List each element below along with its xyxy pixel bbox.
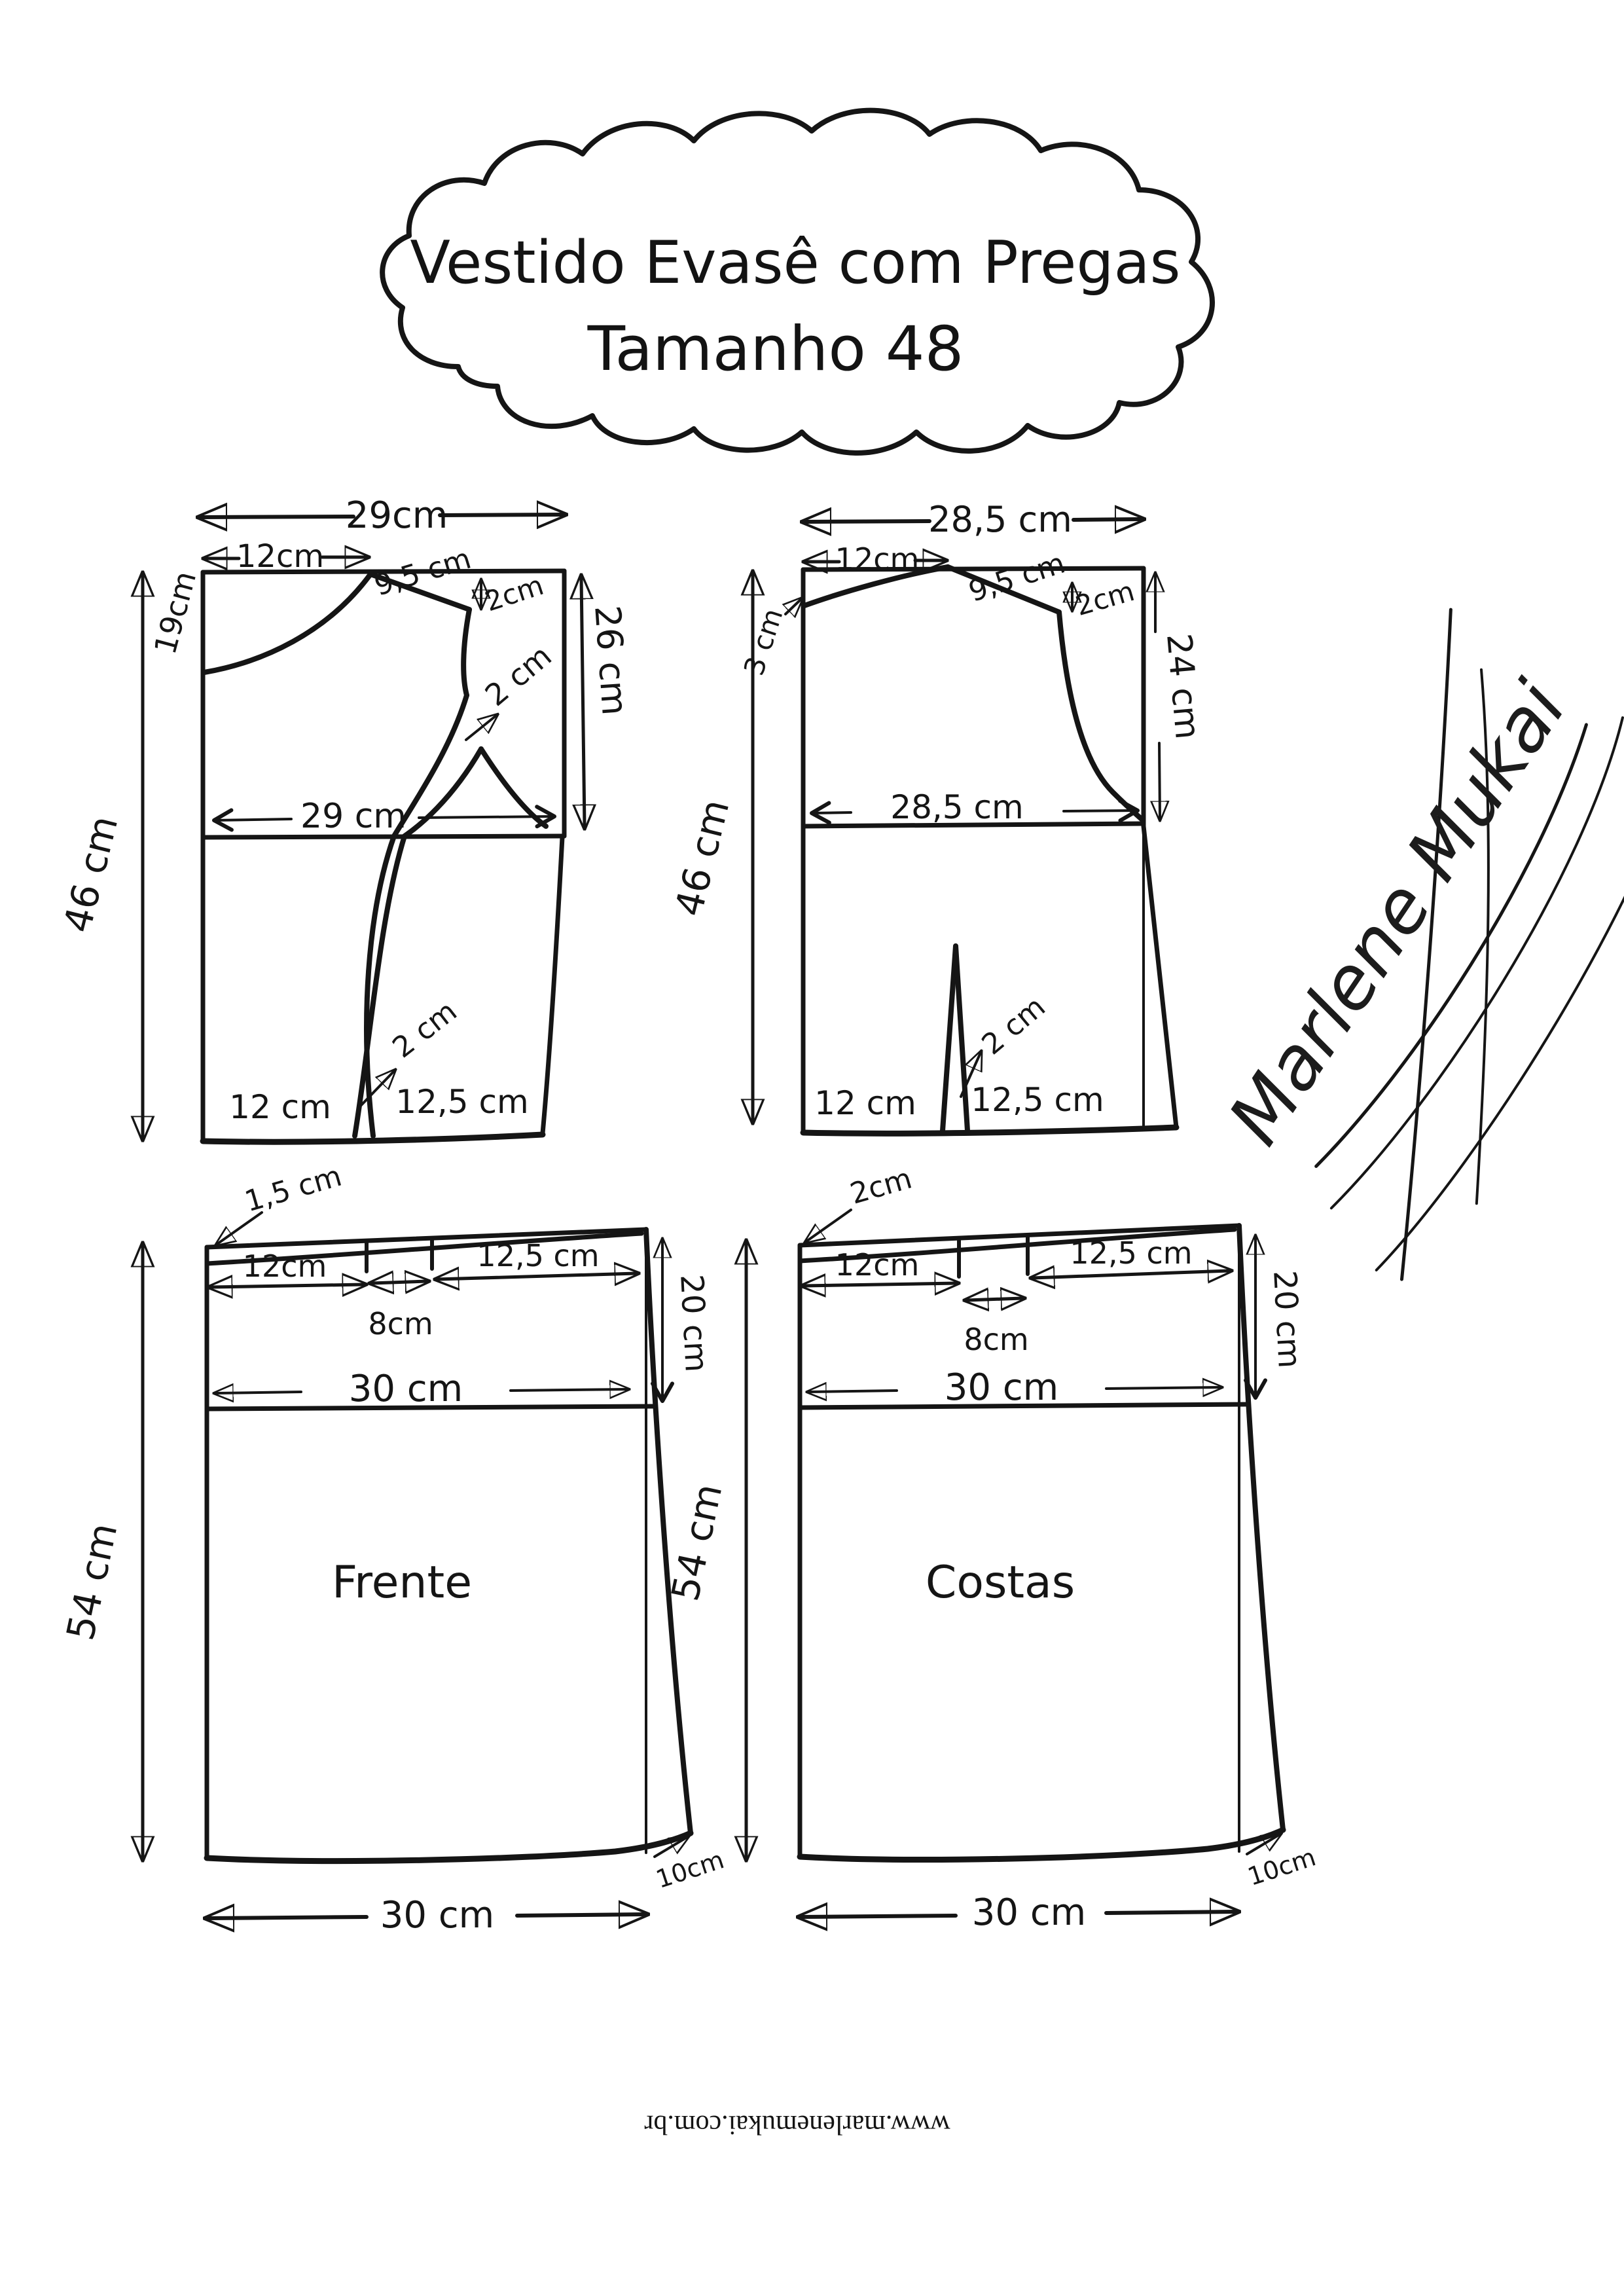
skirt-back-pleat-arrow [967,1298,1022,1300]
bodice-back-side-length-arrow2 [1159,743,1160,818]
bodice-front-armhole [463,610,469,695]
bodice-front-hem-seg-right-label: 12,5 cm [395,1083,528,1121]
bodice-front-side-length-arrow [581,577,585,826]
bodice-front-waist-arrow [214,819,291,820]
skirt-back-hem-width-arrow2 [1106,1912,1236,1913]
skirt-back-hem-width-arrow [801,1916,956,1917]
signature-text: Marlene Mukai [1212,667,1583,1159]
bodice-front-top-width-label: 29cm [346,494,448,537]
skirt-front-seg1-arrow [211,1285,364,1287]
bodice-back-hem-dart-label: 2 cm [976,990,1052,1061]
skirt-back-hem-width-label: 30 cm [972,1891,1086,1934]
skirt-back-hip-width-arrow [809,1391,897,1392]
skirt-front-hem [207,1833,691,1861]
bodice-back-height-label: 46 cm [666,795,738,920]
bodice-back-dart-right-leg [956,946,967,1131]
skirt-back-hip-drop-label: 20 cm [1266,1269,1308,1369]
skirt-front-hip-drop-label: 20 cm [673,1273,715,1373]
skirt-front-pleat-label: 8cm [368,1306,433,1341]
bodice-front-princess-line-1 [367,695,467,1136]
bodice-back-waist-width-label: 28,5 cm [890,788,1023,826]
bodice-front-neck-width-label: 12cm [236,538,324,575]
bodice-back-side-length-label: 24 cm [1159,632,1207,741]
title-cloud: Vestido Evasê com Pregas Tamanho 48 [382,111,1212,453]
bodice-back-neck-depth-arrow [785,599,801,614]
bodice-back-dart-left-leg [943,946,956,1131]
bodice-back-top-width-arrow2 [1074,519,1141,520]
skirt-back-rise-label: 2cm [846,1161,915,1211]
pattern-canvas: Vestido Evasê com Pregas Tamanho 48 29cm… [0,0,1624,2296]
skirt-back-hip-width-label: 30 cm [945,1366,1058,1409]
bodice-back-shoulder-label: 9,5 cm [965,547,1069,609]
skirt-back-seg2-label: 12,5 cm [1070,1235,1192,1271]
skirt-back-hip-width-arrow2 [1106,1387,1220,1389]
bodice-front-neck-depth-label: 19cm [147,568,203,658]
skirt-back-pleat-label: 8cm [964,1322,1028,1357]
bodice-front-hem-seg-left-label: 12 cm [229,1088,331,1126]
bodice-back-armhole [1059,612,1142,820]
bodice-front-height-label: 46 cm [55,811,127,937]
bodice-back-waist-arrow [812,812,851,813]
bodice-front-hem-dart-label: 2 cm [386,994,463,1065]
skirt-front-seg1-label: 12cm [243,1248,327,1284]
bodice-front-top-width-arrow2 [440,515,563,515]
skirt-front-pleat-arrow [372,1281,427,1283]
bodice-front-side-length-label: 26 cm [586,604,636,717]
piece-bodice-back: 28,5 cm 12cm 3 cm 9,5 cm 2cm 24 cm 46 cm… [666,499,1207,1133]
skirt-back-seg1-label: 12cm [835,1247,920,1283]
skirt-front-seg2-arrow [437,1273,636,1279]
bodice-front-armhole-dart-arrow [466,716,496,740]
skirt-front-hip-width-arrow [216,1392,301,1393]
bodice-front-waist-line [203,836,564,837]
bodice-back-neck-width-label: 12cm [835,541,920,577]
piece-skirt-back: 2cm 12cm 8cm 12,5 cm 20 cm 30 cm 54 cm C… [662,1161,1319,1934]
bodice-back-top-width-label: 28,5 cm [928,499,1072,540]
bodice-back-shoulder-drop-label: 2cm [1072,575,1138,622]
skirt-back-piece-label: Costas [926,1557,1075,1609]
skirt-back-seg1-arrow [804,1283,956,1286]
skirt-back-hem [800,1830,1283,1859]
page-title: Vestido Evasê com Pregas [410,228,1180,297]
pattern-sheet: Vestido Evasê com Pregas Tamanho 48 29cm… [0,0,1624,2296]
skirt-back-rise-arrow [806,1210,851,1241]
website-credit: www.marlenemukai.com.br [644,2109,950,2140]
page-subtitle: Tamanho 48 [587,314,964,385]
skirt-front-hem-width-label: 30 cm [380,1894,494,1937]
bodice-back-neck-depth-label: 3 cm [738,604,789,679]
bodice-front-shoulder-drop-label: 2cm [481,569,547,618]
bodice-front-side-seam-lower [543,837,562,1133]
bodice-front-top-width-arrow [201,517,353,517]
bodice-front-waist-arrow2 [419,816,554,818]
skirt-front-piece-label: Frente [332,1557,472,1609]
skirt-front-hem-width-arrow [208,1917,367,1918]
bodice-back-top-width-arrow [805,521,929,522]
bodice-front-armhole-dart-label: 2 cm [478,638,558,713]
bodice-back-waist-arrow2 [1064,811,1138,811]
bodice-back-bottom-edge [803,1127,1176,1133]
bodice-back-hem-seg-right-label: 12,5 cm [971,1081,1104,1119]
bodice-front-neckline [204,574,370,672]
skirt-front-rise-label: 1,5 cm [241,1159,345,1219]
piece-skirt-front: 1,5 cm 12cm 8cm 12,5 cm 20 cm 30 cm 54 c… [58,1159,727,1937]
piece-bodice-front: 29cm 12cm 9,5 cm 2cm 19cm 26 cm 46 cm 29… [55,494,636,1142]
bodice-back-hem-seg-left-label: 12 cm [814,1084,916,1122]
bodice-front-dart-right-leg [481,749,546,826]
skirt-front-hip-width-label: 30 cm [349,1368,463,1410]
skirt-front-hem-width-arrow2 [517,1914,645,1916]
skirt-front-hip-width-arrow2 [511,1389,627,1391]
skirt-back-length-label: 54 cm [662,1480,731,1605]
skirt-front-length-label: 54 cm [58,1519,126,1644]
skirt-front-seg2-label: 12,5 cm [477,1238,599,1273]
skirt-back-seg2-arrow [1033,1271,1229,1278]
bodice-back-side-seam-lower [1144,826,1176,1127]
bodice-front-waist-width-label: 29 cm [300,797,406,836]
